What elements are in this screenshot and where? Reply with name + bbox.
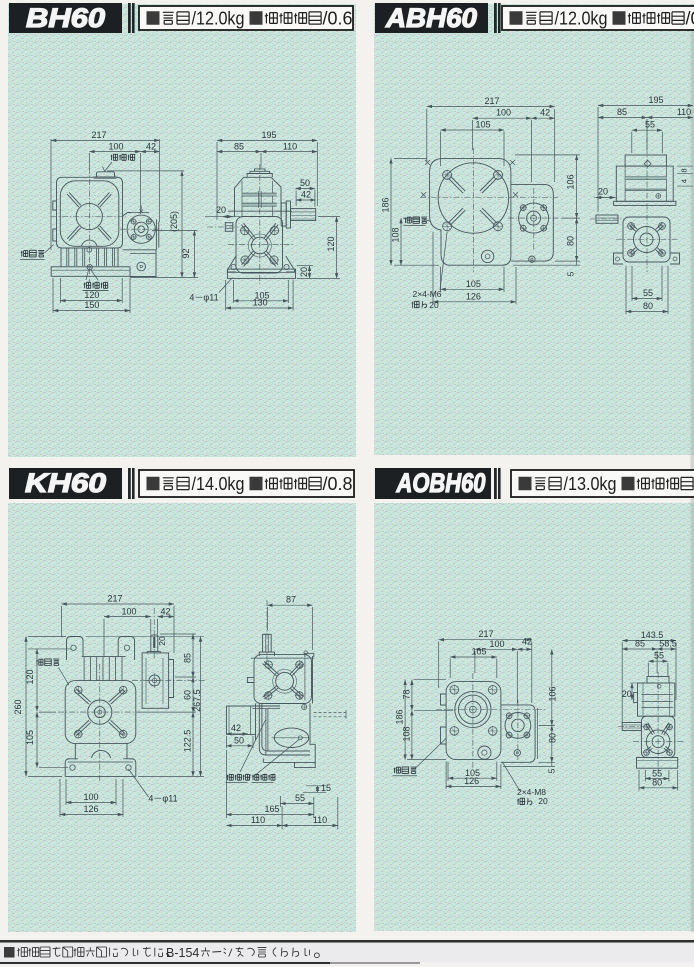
svg-text:110: 110 bbox=[677, 107, 691, 117]
svg-text:4－φ11: 4－φ11 bbox=[148, 794, 177, 804]
svg-text:105: 105 bbox=[466, 279, 481, 289]
svg-text:42: 42 bbox=[146, 142, 156, 152]
svg-text:58.5: 58.5 bbox=[659, 639, 677, 649]
svg-text:KH60: KH60 bbox=[25, 468, 106, 498]
svg-text:85: 85 bbox=[234, 142, 244, 152]
svg-text:217: 217 bbox=[91, 130, 106, 140]
svg-text:42: 42 bbox=[160, 606, 170, 616]
svg-text:/13.0kg: /13.0kg bbox=[564, 473, 617, 494]
svg-text:100: 100 bbox=[121, 606, 136, 616]
svg-text:108: 108 bbox=[401, 726, 411, 741]
svg-text:120: 120 bbox=[84, 290, 99, 300]
svg-text:106: 106 bbox=[548, 686, 558, 701]
svg-text:4: 4 bbox=[680, 179, 689, 183]
svg-text:B-154: B-154 bbox=[166, 946, 199, 960]
svg-text:20: 20 bbox=[299, 267, 309, 277]
svg-text:55: 55 bbox=[643, 288, 653, 298]
svg-text:20: 20 bbox=[157, 636, 167, 646]
svg-text:217: 217 bbox=[484, 96, 499, 106]
svg-text:165: 165 bbox=[264, 804, 279, 814]
svg-text:42: 42 bbox=[231, 723, 241, 733]
svg-text:/0.6: /0.6 bbox=[323, 7, 353, 28]
svg-text:55: 55 bbox=[295, 793, 305, 803]
svg-text:217: 217 bbox=[107, 594, 122, 604]
svg-text:80: 80 bbox=[652, 778, 662, 788]
svg-text:110: 110 bbox=[313, 815, 327, 825]
svg-text:50: 50 bbox=[234, 735, 244, 745]
svg-text:106: 106 bbox=[566, 174, 576, 189]
svg-text:100: 100 bbox=[83, 792, 98, 802]
svg-text:80: 80 bbox=[548, 733, 558, 743]
svg-text:55: 55 bbox=[645, 120, 655, 130]
svg-text:186: 186 bbox=[395, 709, 405, 724]
svg-text:5: 5 bbox=[547, 768, 557, 773]
svg-text:(205): (205) bbox=[169, 211, 179, 232]
svg-text:/0.6: /0.6 bbox=[686, 7, 694, 28]
svg-text:4－φ11: 4－φ11 bbox=[189, 293, 218, 303]
svg-text:/0.8: /0.8 bbox=[323, 473, 353, 494]
svg-text:110: 110 bbox=[251, 815, 265, 825]
svg-text:100: 100 bbox=[489, 639, 504, 649]
svg-text:20: 20 bbox=[538, 796, 548, 806]
svg-text:85: 85 bbox=[183, 653, 193, 663]
svg-text:120: 120 bbox=[326, 236, 336, 251]
svg-text:87: 87 bbox=[286, 595, 296, 605]
svg-text:15: 15 bbox=[321, 783, 331, 793]
svg-text:/12.0kg: /12.0kg bbox=[555, 7, 608, 28]
svg-text:/12.0kg: /12.0kg bbox=[192, 7, 245, 28]
svg-text:78: 78 bbox=[401, 689, 411, 699]
svg-text:186: 186 bbox=[381, 197, 391, 212]
svg-text:BH60: BH60 bbox=[26, 3, 105, 33]
svg-text:85: 85 bbox=[635, 639, 645, 649]
svg-text:100: 100 bbox=[108, 142, 123, 152]
svg-text:126: 126 bbox=[83, 804, 98, 814]
svg-text:126: 126 bbox=[466, 292, 481, 302]
svg-text:5: 5 bbox=[566, 271, 576, 276]
svg-text:108: 108 bbox=[391, 227, 401, 242]
svg-text:80: 80 bbox=[643, 301, 653, 311]
svg-text:80: 80 bbox=[566, 236, 576, 246]
svg-text:2×4-M6: 2×4-M6 bbox=[412, 289, 441, 299]
svg-text:195: 195 bbox=[261, 130, 276, 140]
svg-text:150: 150 bbox=[84, 300, 99, 310]
svg-text:85: 85 bbox=[617, 107, 627, 117]
svg-text:120: 120 bbox=[25, 669, 35, 684]
svg-text:105: 105 bbox=[475, 120, 490, 130]
svg-text:20: 20 bbox=[216, 205, 226, 215]
svg-text:20: 20 bbox=[598, 187, 608, 197]
svg-text:92: 92 bbox=[181, 248, 191, 258]
svg-text:AOBH60: AOBH60 bbox=[396, 468, 486, 498]
svg-text:8: 8 bbox=[680, 168, 689, 172]
svg-text:110: 110 bbox=[283, 142, 297, 152]
svg-text:55: 55 bbox=[654, 651, 664, 661]
svg-text:42: 42 bbox=[522, 637, 532, 647]
svg-text:130: 130 bbox=[253, 298, 268, 308]
svg-text:105: 105 bbox=[471, 647, 486, 657]
svg-text:195: 195 bbox=[648, 95, 663, 105]
svg-text:122.5: 122.5 bbox=[183, 730, 193, 753]
svg-text:/14.0kg: /14.0kg bbox=[192, 473, 245, 494]
svg-text:42: 42 bbox=[540, 108, 550, 118]
svg-text:217: 217 bbox=[478, 629, 493, 639]
svg-text:42: 42 bbox=[301, 190, 311, 200]
svg-text:ABH60: ABH60 bbox=[385, 3, 477, 33]
svg-text:105: 105 bbox=[25, 730, 35, 745]
svg-text:100: 100 bbox=[496, 108, 511, 118]
svg-text:50: 50 bbox=[300, 178, 310, 188]
svg-text:20: 20 bbox=[429, 300, 439, 310]
svg-text:260: 260 bbox=[13, 699, 23, 714]
svg-text:20: 20 bbox=[622, 689, 632, 699]
svg-text:267.5: 267.5 bbox=[192, 689, 202, 712]
svg-text:126: 126 bbox=[464, 776, 479, 786]
